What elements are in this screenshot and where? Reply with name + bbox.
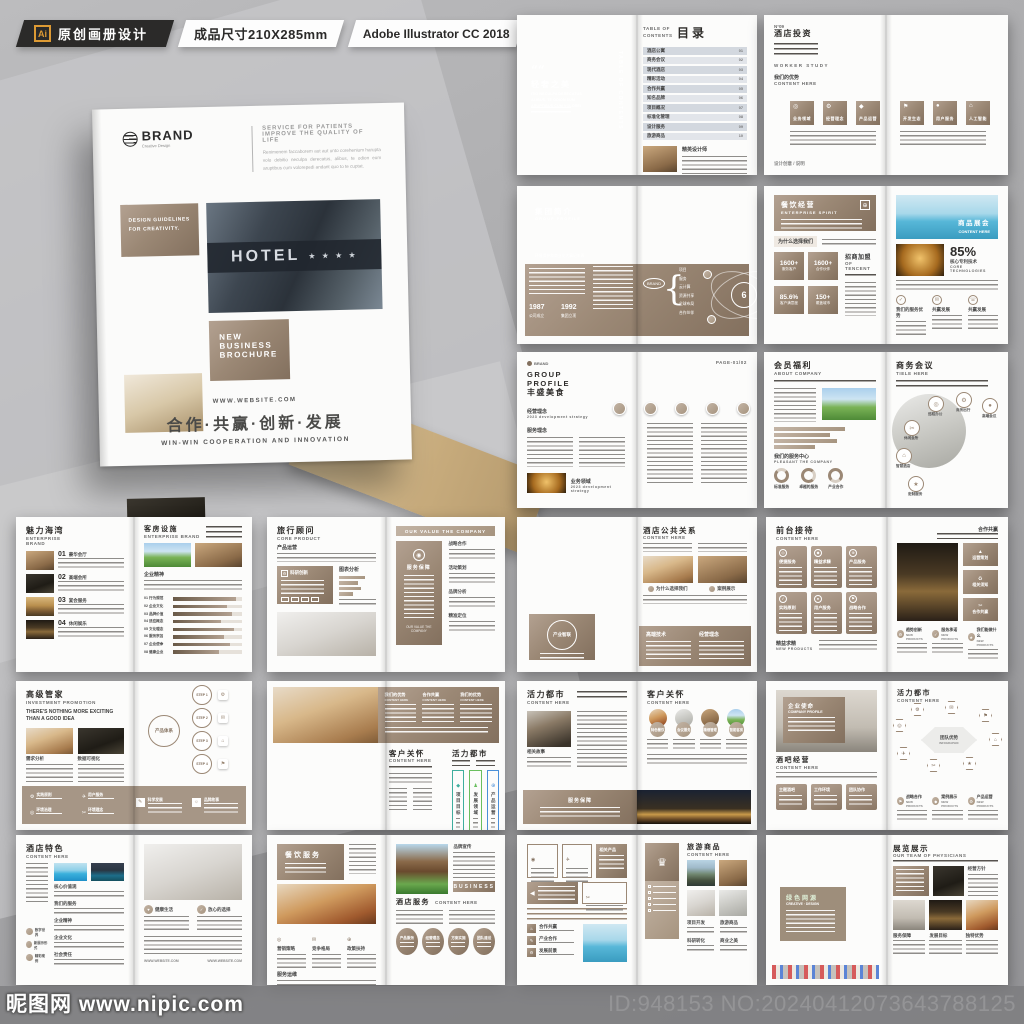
caption-col: 经营方针 xyxy=(968,866,998,896)
case-icon: ◆ xyxy=(932,797,939,805)
flask-icon: ⚙ xyxy=(281,570,288,577)
text-lines xyxy=(26,764,73,782)
chip xyxy=(311,597,319,602)
text-lines xyxy=(396,910,443,924)
text-lines xyxy=(451,942,465,947)
text-label: 现代酒店 xyxy=(647,67,665,73)
text-label: 服务保障 xyxy=(893,933,925,939)
decor: 餐饮服务 xyxy=(277,844,376,880)
service-panel: ◉ 服务保障 OUR VALUE THE COMPANY xyxy=(396,541,442,645)
caption-col: 服务保障 xyxy=(893,933,925,954)
wifi-icon: ◎ xyxy=(928,396,944,412)
decor: 合作共赢CONTENT HERE xyxy=(422,692,454,724)
bar-card: 主题酒吧 xyxy=(776,784,807,810)
node xyxy=(707,315,716,324)
text-label: 覆盖城市 xyxy=(816,301,830,306)
check-icon: ✓ xyxy=(197,905,206,914)
decor: 04休闲娱乐 xyxy=(58,620,124,638)
decor xyxy=(648,909,676,912)
text-label: 6 xyxy=(741,290,746,300)
toc-row: 旅游商品10 xyxy=(643,133,747,141)
hex-node: ✂ xyxy=(927,759,940,772)
small-photo xyxy=(643,146,677,172)
cloud-icon: ⚙ xyxy=(956,392,972,408)
decor: 业务领域2023 development strategy xyxy=(527,473,627,493)
service-card: ●用户服务 xyxy=(811,592,842,634)
coop-label: 合作共赢 xyxy=(978,526,998,533)
decor: Ai原创画册设计 xyxy=(34,24,148,43)
numbered-item: 01豪华会厅 xyxy=(26,551,124,570)
feature-col: ✓放心的选择 xyxy=(197,905,242,932)
text-label: 需求分析 xyxy=(26,756,73,762)
text-lines xyxy=(701,423,747,485)
satellite: ◎远程办公 xyxy=(928,396,944,417)
text-lines xyxy=(653,910,676,912)
text-label: 产品体系 xyxy=(155,728,173,734)
text-label: 数据可视化 xyxy=(78,756,125,762)
text-label: 商务会议 xyxy=(647,57,665,63)
text-label: WWW.WEBSITE.COM xyxy=(207,959,242,963)
text-lines xyxy=(529,268,585,294)
satellite: ★定制服务 xyxy=(908,476,924,497)
breakfast-photo xyxy=(273,687,385,743)
decor xyxy=(452,760,495,766)
text-lines xyxy=(78,764,125,782)
text-lines xyxy=(277,980,376,985)
system-circle: 产品体系 xyxy=(148,715,180,747)
join-title: 招商加盟 xyxy=(845,252,876,261)
decor xyxy=(648,897,676,900)
text-lines xyxy=(538,886,575,900)
text-lines xyxy=(88,813,114,817)
text-lines xyxy=(653,898,676,900)
text-label: 智慧酒店 xyxy=(896,464,912,469)
decor: 标准服务 卓越的服务 产业合作 xyxy=(774,468,876,490)
text-lines xyxy=(281,580,324,594)
decor: BRANDCreative Design xyxy=(141,127,193,148)
bell-icon: ◉ xyxy=(413,549,425,561)
text-label: 工作环境 xyxy=(814,787,839,793)
text-lines xyxy=(774,388,816,422)
text-lines xyxy=(932,315,962,329)
page-label: PAGE-01/02 xyxy=(716,360,747,365)
text-lines xyxy=(896,280,998,290)
food-right-page: PAGE-01/02 xyxy=(637,352,757,508)
text-lines xyxy=(929,940,961,954)
decor: 服务保障 发展目标 独特优势 xyxy=(893,933,998,954)
decor: 01豪华会厅 xyxy=(58,551,124,569)
flag-icon: ⚑ xyxy=(897,797,904,805)
advisor-sub: CORE PRODUCT xyxy=(277,536,376,541)
decor: 业务领域2023 development strategy xyxy=(571,478,627,493)
service-card: ◆精益求精 xyxy=(811,546,842,588)
text-label: 04 xyxy=(739,77,743,81)
decor: ✓放心的选择 xyxy=(197,905,242,914)
home-icon: ⌂ xyxy=(896,448,912,464)
text-label: 02 xyxy=(58,574,66,581)
text-label: 特色餐饮 xyxy=(651,727,665,732)
gear-icon: ⚙ xyxy=(826,103,831,110)
hex-node: ★ xyxy=(963,757,976,770)
text-label: NEW PRODUCTS xyxy=(906,800,927,808)
spread-charming-bay: 魅力海湾 ENTERPRISE BRAND 01豪华会厅 02高端会所 03宴会… xyxy=(16,517,252,672)
satellite: ●高端会议 xyxy=(982,398,998,419)
decor: 数字世界 新展示形式 精彩案例 核心价值观 我们的服务 企业精神 企业文化 社会… xyxy=(26,863,124,967)
text-lines xyxy=(937,533,998,539)
text-lines xyxy=(814,613,837,631)
decor xyxy=(647,423,747,485)
circle-icon: STEP 4 xyxy=(192,754,212,774)
company-left-page: 企业使命 COMPANY PROFILE 酒吧经营 CONTENT HERE 主… xyxy=(766,681,887,830)
banner-sub: CONTENT HERE xyxy=(958,229,990,234)
advisor-title: 旅行顾问 xyxy=(277,526,376,536)
medallion xyxy=(644,402,657,415)
cover-intro-text: Renimenem faccaborem aut aut unto corehe… xyxy=(263,146,382,172)
satellite: ⌂智慧酒店 xyxy=(896,448,912,469)
step-item: STEP 3⌂ xyxy=(192,731,228,751)
speaker-icon: ◀ xyxy=(530,890,535,897)
text-label: 07 xyxy=(739,106,743,110)
decor: ✓服务承诺NEW PRODUCTS xyxy=(932,627,962,641)
text-label: 项目 xyxy=(679,268,694,273)
leaf-icon: ⚑ xyxy=(903,103,908,110)
bottom-col: ⚙趋势创新NEW PRODUCTS xyxy=(897,627,927,661)
taupe-card: 相关产品 xyxy=(596,844,627,878)
bar xyxy=(339,581,358,585)
text-lines xyxy=(687,927,714,935)
dot-icon xyxy=(26,954,33,961)
text-label: NEW PRODUCTS xyxy=(977,639,998,647)
text-label: 05 xyxy=(739,87,743,91)
item-photo xyxy=(26,551,54,570)
tools-icon: ✂ xyxy=(904,420,920,436)
overlay-box: 产业智联 xyxy=(529,614,595,660)
spread-exhibition: 绿色网源 CREATIVE · DESIGN 展览展示 OUR TEAM OF … xyxy=(766,835,1008,985)
text-lines xyxy=(144,580,242,592)
bay-right-page: 客房设施ENTERPRISE BRAND 企业精神 01 行为规范 02 企业文… xyxy=(134,517,252,672)
list-item: ♨合作共赢 xyxy=(527,924,578,933)
checkbox xyxy=(648,909,651,912)
decor: ⚙趋势创新NEW PRODUCTS ✓服务承诺NEW PRODUCTS ★我们能… xyxy=(897,627,998,661)
text-label: 云计算 xyxy=(679,285,694,290)
text-label: 运营策划 xyxy=(972,555,988,561)
decor: ◀ ✂ xyxy=(527,882,627,904)
decor: ★我们能做什么NEW PRODUCTS xyxy=(968,627,998,647)
service-col: ✉共赢发展 xyxy=(932,295,962,335)
text-lines xyxy=(900,131,986,147)
text-label: 02 xyxy=(739,58,743,62)
feature-tile: ⌂人工智能 xyxy=(966,101,990,125)
decor: ✎科学发展 ☼品牌故事 xyxy=(136,791,238,819)
text-lines xyxy=(277,954,306,968)
decor: 02高端会所 xyxy=(58,574,124,581)
care-sub: CONTENT HERE xyxy=(389,758,432,763)
decor: ⚙趋势创新NEW PRODUCTS xyxy=(897,627,927,641)
category-label: 原创画册设计 xyxy=(58,24,148,43)
medallion xyxy=(706,402,719,415)
butler-photo xyxy=(78,728,125,754)
toc-row: 标准化管理08 xyxy=(643,114,747,122)
dining-header: 餐饮服务 xyxy=(277,844,344,880)
text-label: 高端会所 xyxy=(69,575,87,581)
dining-sub: ENTERPRISE SPIRIT xyxy=(781,210,869,215)
text-lines xyxy=(285,863,326,875)
text-lines xyxy=(54,959,124,967)
cover-tagline2: IMPROVE THE QUALITY OF LIFE xyxy=(262,129,381,144)
text-lines xyxy=(422,704,454,724)
text-label: 产品服务 xyxy=(400,936,414,941)
pr-title: 酒店公共关系 xyxy=(643,526,747,535)
policy-col: ◎营销策略 xyxy=(277,928,306,968)
text-card xyxy=(893,866,929,896)
caption-block: 商业之美 xyxy=(720,938,747,953)
text-lines xyxy=(88,798,114,802)
text-label: 实践原则 xyxy=(779,605,804,611)
dot-icon xyxy=(26,941,32,948)
hotel-sign-band: HOTEL ★ ★ ★ ★ xyxy=(207,239,382,273)
ops-title: 服务运维 xyxy=(277,971,376,978)
shuffle-icon: ⚙ xyxy=(30,794,34,800)
text-label: 产业合作 xyxy=(828,485,843,490)
text-label: 服务保障 xyxy=(568,797,592,804)
chef-photo xyxy=(527,711,571,747)
text-lines xyxy=(700,739,721,751)
outline-card: ◉ xyxy=(527,844,558,878)
keycard-photo xyxy=(195,543,242,567)
text-lines xyxy=(786,910,835,934)
text-lines xyxy=(460,704,492,724)
decor: ⚙科研创新 xyxy=(281,570,329,577)
spirit-label: 企业精神 xyxy=(144,571,242,578)
step-item: STEP 2✉ xyxy=(192,708,228,728)
side-tile: ▲运营策划 xyxy=(963,543,998,566)
network-diagram: 6 xyxy=(701,266,757,326)
spread-dining-business: ⊕ 餐饮经营 ENTERPRISE SPIRIT 为什么选择我们 1600+服务… xyxy=(764,186,1008,344)
outlined-box: ♟发展领域 xyxy=(469,770,482,830)
dot-icon xyxy=(26,928,33,935)
circle-item: 智能客房 xyxy=(726,709,747,751)
text-lines xyxy=(932,810,962,822)
text-lines xyxy=(682,156,747,174)
cover-header: BRANDCreative Design SERVICE FOR PATIENT… xyxy=(92,103,405,176)
dining-title: 餐饮经营 xyxy=(781,200,869,210)
buffet-photo xyxy=(277,884,376,924)
text-lines xyxy=(539,930,574,933)
text-label: NEW PRODUCTS xyxy=(941,633,962,641)
text-lines xyxy=(586,905,623,914)
decor: 战略合作 活动策划 品牌分析 精准定位 xyxy=(449,541,495,645)
text-lines xyxy=(896,869,924,891)
bottom-cols: ⚑战略合作NEW PRODUCTS ◆案例展示NEW PRODUCTS ⚙产品运… xyxy=(897,794,998,822)
mini-item: 精彩案例 xyxy=(26,953,48,963)
decor: 高端技术 xyxy=(646,631,691,661)
business-button[interactable]: BUSINESS xyxy=(453,881,495,892)
text-label: 科研转化 xyxy=(687,938,714,944)
decor: 1600+服务客户 1600+合作伙伴 85.6%客户满意度 150+覆盖城市 xyxy=(774,252,838,316)
text-label: 豪华会厅 xyxy=(69,552,87,558)
text-label: 经营方针 xyxy=(968,866,998,872)
hex-center: 团队优势INFOGRAPHIC xyxy=(921,727,977,753)
decor: 我们的优势CONTENT HERE xyxy=(385,692,417,724)
text-label: 旅游商品 xyxy=(720,920,747,926)
bar-track xyxy=(173,620,242,624)
policy-col: ⊕政策扶持 xyxy=(347,928,376,968)
decor: 相关故事 xyxy=(527,711,627,767)
bar-track xyxy=(173,597,242,601)
text-lines xyxy=(148,803,182,813)
toc-row: 酒店公寓01 xyxy=(643,47,747,55)
guidelines-label: DESIGN GUIDELINES FOR CREATIVITY. xyxy=(128,215,190,234)
text-lines xyxy=(527,437,573,467)
hotel-sign-stars: ★ ★ ★ ★ xyxy=(308,250,358,260)
text-lines xyxy=(577,691,627,701)
text-lines xyxy=(966,940,998,954)
bar-row: 01 行为规范 xyxy=(144,596,242,601)
footer-note: 设计创意 / 说明 xyxy=(774,161,805,167)
donut-chart xyxy=(801,468,816,483)
text-label: 项目目标 xyxy=(456,792,461,816)
decor: ⚙科研创新 图表分析 xyxy=(277,566,376,607)
toc-label: TABLE OF CONTENTS xyxy=(643,26,677,40)
hex-title: 活力都市 xyxy=(897,690,998,698)
decor: 精益求精NEW PRODUCTS xyxy=(776,640,813,651)
text-label: 放心的选择 xyxy=(208,907,231,913)
text-label: WWW.WEBSITE.COM xyxy=(144,959,179,963)
decor: ⚑战略合作NEW PRODUCTS xyxy=(897,794,927,808)
brochure-cover-mockup: BRANDCreative Design SERVICE FOR PATIENT… xyxy=(92,103,412,467)
text-label: 用户服务 xyxy=(936,116,954,122)
text-label: 08 xyxy=(739,115,743,119)
feature-tile: ⚑开发生态 xyxy=(900,101,924,125)
text-label: 08 健康企业 xyxy=(144,650,170,655)
medallion xyxy=(675,402,688,415)
decor xyxy=(648,891,676,894)
satellite: ⚙商务出行 xyxy=(956,392,972,413)
cover-photo-grid: DESIGN GUIDELINES FOR CREATIVITY. HOTEL … xyxy=(120,199,384,383)
text-label: 业务领域 xyxy=(793,116,811,122)
decor xyxy=(281,597,329,602)
footer-sub: NEW PRODUCTS xyxy=(776,647,813,651)
text-lines xyxy=(781,219,862,229)
text-label: 营销策略 xyxy=(277,946,306,952)
maid-photo xyxy=(687,890,715,916)
coins-photo xyxy=(527,473,566,493)
text-label: 1600+ xyxy=(814,260,832,267)
text-lines xyxy=(449,621,495,633)
decor: ♨合作共赢 ✎产业合作 ⚙发展前景 xyxy=(527,924,578,962)
bar-fill xyxy=(173,643,230,647)
bar-row: 03 品牌价值 xyxy=(144,612,242,617)
bar-track xyxy=(173,650,242,654)
value-banner: OUR VALUE THE COMPANY xyxy=(396,526,495,536)
text-label: 健康生活 xyxy=(155,907,173,913)
circle: 精细管理 xyxy=(703,722,718,737)
text-lines xyxy=(968,649,998,661)
text-label: 05 文化理念 xyxy=(144,627,170,632)
text-label: 03 xyxy=(58,597,66,604)
gold-building-photo xyxy=(896,244,944,276)
trophy-block: ♛ xyxy=(645,843,679,881)
circle-diagram: ◎远程办公 ⚙商务出行 ●高端会议 ✂休闲会所 ⌂智慧酒店 ★定制服务 xyxy=(894,396,1002,502)
decor: 03宴会服务 xyxy=(58,597,124,604)
text-label: 10 xyxy=(739,134,743,138)
text-label: 为什么选择我们 xyxy=(656,586,688,592)
text-label: 共赢发展 xyxy=(932,307,962,313)
text-lines xyxy=(647,754,747,766)
decor: ♥健康生活 ✓放心的选择 xyxy=(144,905,242,932)
user-icon: ● xyxy=(814,595,822,603)
title-en: GROUP PROFILE xyxy=(527,370,587,388)
service-col: ☏共赢发展 xyxy=(968,295,998,335)
pen-icon: ✂ xyxy=(82,810,86,816)
text-label: 06 xyxy=(739,96,743,100)
decor: 环境治理 xyxy=(36,808,62,817)
decor: 04休闲娱乐 xyxy=(58,620,124,627)
text-label: 科研创新 xyxy=(290,570,308,576)
text-lines xyxy=(720,927,747,935)
decor: 1600+服务客户 1600+合作伙伴 85.6%客户满意度 150+覆盖城市 … xyxy=(774,252,876,316)
text-label: CREATIVE · DESIGN xyxy=(786,902,840,906)
text-lines xyxy=(58,558,124,569)
checkbox xyxy=(648,885,651,888)
service-caption: 我们的服务中心 xyxy=(774,453,876,460)
medallion xyxy=(613,402,626,415)
text-label: 150+ xyxy=(816,294,831,301)
spread-customer-care: 我们的优势CONTENT HERE 合作共赢CONTENT HERE 我们的优势… xyxy=(267,681,505,830)
guesthouse-photo xyxy=(396,844,448,894)
caption-block: 科研转化 xyxy=(687,938,714,953)
text-label: 相关产品 xyxy=(599,847,624,853)
target-icon: ⊕ xyxy=(491,783,495,789)
text-label: 产品运营 xyxy=(859,116,877,122)
service-icon: ✓ xyxy=(896,295,906,305)
watch-photo xyxy=(966,900,998,930)
decor: 发展前景 xyxy=(539,948,578,957)
text-label: 85.6% xyxy=(780,294,798,301)
policy-col: ✉竞争格局 xyxy=(312,928,341,968)
text-label: 核心价值观 xyxy=(54,884,124,890)
stat-tile: 85.6%客户满意度 xyxy=(774,286,804,314)
text-lines xyxy=(819,640,877,650)
text-lines xyxy=(539,954,574,957)
lobby-photo xyxy=(643,556,693,583)
text-label: 我们的服务优势 xyxy=(896,307,926,319)
decor: 数字世界 新展示形式 精彩案例 xyxy=(26,927,48,963)
why-label: 为什么选择我们 xyxy=(774,236,817,247)
bar-row: 04 适应概念 xyxy=(144,619,242,624)
industry-circle: 产业智联 xyxy=(547,620,577,650)
service-sub: CONTENT HERE xyxy=(435,900,478,905)
checklist-block xyxy=(645,881,679,939)
text-lines xyxy=(453,852,495,878)
spread-butler: ⚙实践原则 ✈用户服务 ◎环境治理 ✂环境理念 ✎科学发展 ☼品牌故事 高级管家… xyxy=(16,681,252,830)
icon-card-grid: ◉ ✈ 相关产品 xyxy=(527,844,627,878)
nipic-watermark: 昵图网 www.nipic.com xyxy=(6,988,244,1018)
text-lines xyxy=(540,807,620,817)
service-col: ✓我们的服务优势 xyxy=(896,295,926,335)
decor: ◎营销策略 ✉竞争格局 ⊕政策扶持 xyxy=(277,928,376,968)
toc-title: 目录 xyxy=(677,24,707,41)
chip xyxy=(281,597,289,602)
concierge-photo xyxy=(929,900,961,930)
decor: 合作共赢 xyxy=(897,526,998,533)
text-label: 用户服务 xyxy=(814,605,839,611)
text-label: 07 企业使命 xyxy=(144,642,170,647)
text-label: 酒店公寓 xyxy=(647,48,665,54)
text-lines xyxy=(897,643,927,655)
toc-row: 商务会议02 xyxy=(643,57,747,65)
text-lines xyxy=(845,274,876,278)
